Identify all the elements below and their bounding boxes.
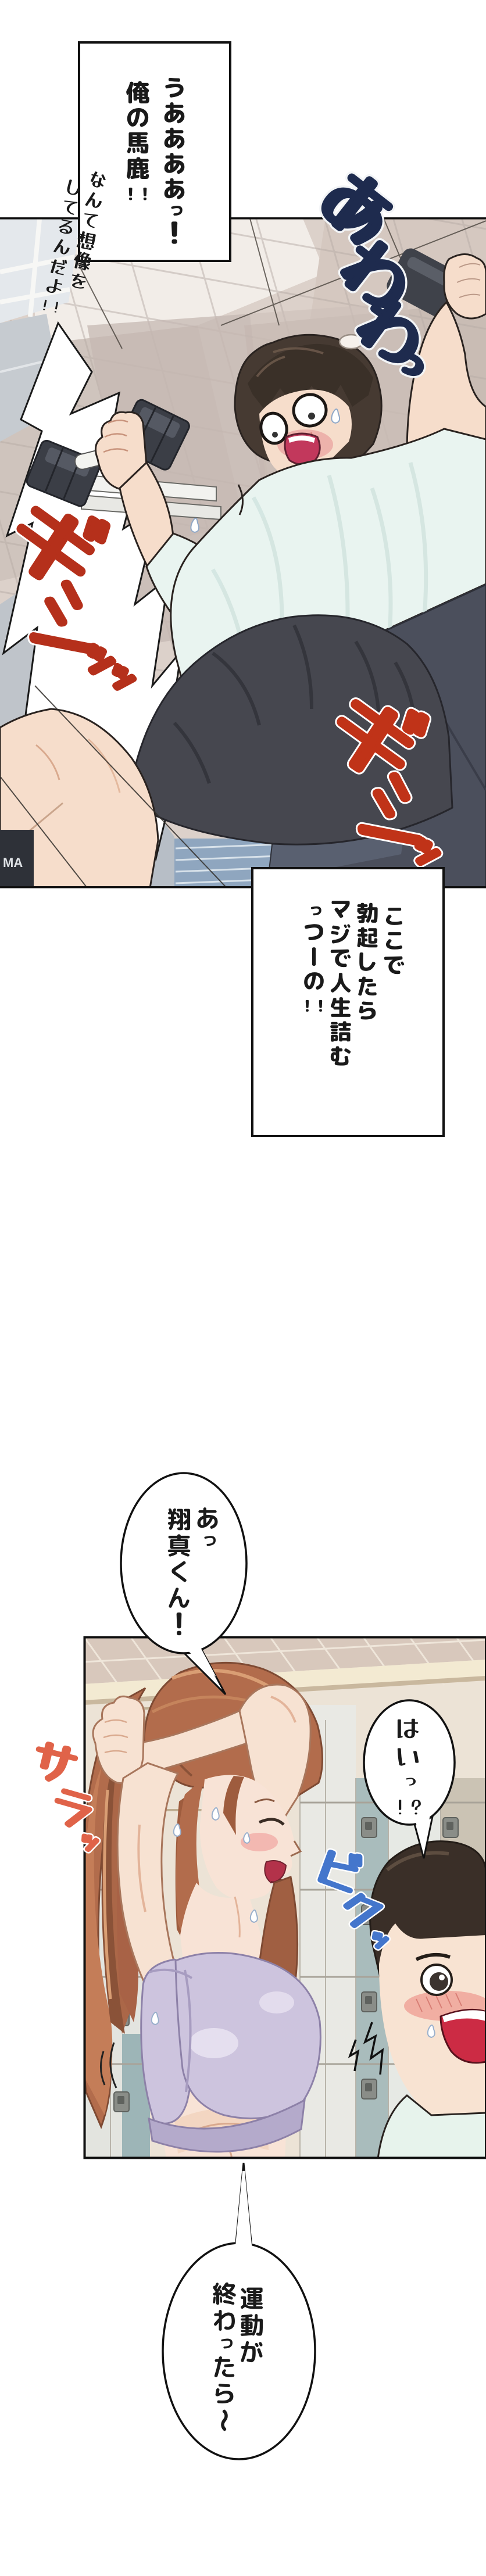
svg-text:MA: MA	[3, 855, 23, 870]
